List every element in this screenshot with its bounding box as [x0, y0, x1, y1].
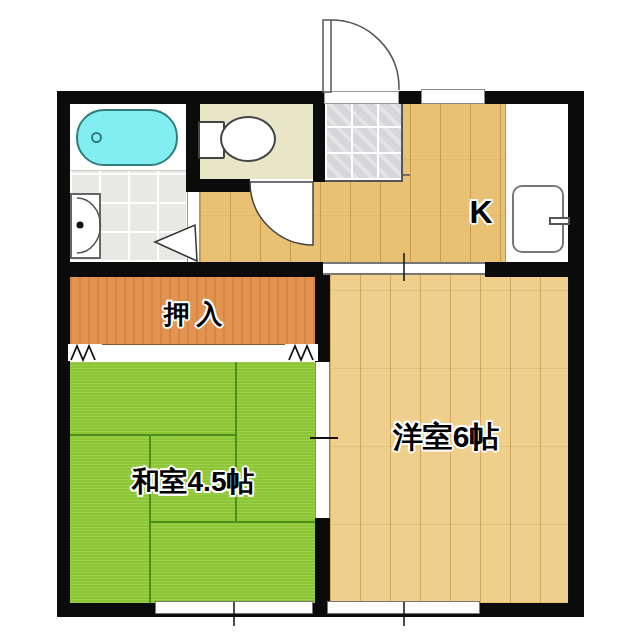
western-room-label: 洋室6帖 — [393, 417, 500, 458]
entrance-door-leaf — [323, 20, 331, 92]
fusuma-zigzag-bg — [68, 344, 102, 361]
closet-label: 押入 — [157, 297, 230, 332]
plan-symbols-overlay — [0, 0, 640, 640]
entrance-door-arc — [331, 20, 399, 90]
floor-plan: 押入 和室4.5帖 洋室6帖 K — [0, 0, 640, 640]
kitchen-label: K — [469, 194, 492, 231]
washbasin-tap — [77, 222, 84, 229]
japanese-room-label: 和室4.5帖 — [132, 463, 255, 501]
washroom-door-triangle — [155, 225, 197, 261]
toilet-door-arc — [250, 182, 313, 245]
